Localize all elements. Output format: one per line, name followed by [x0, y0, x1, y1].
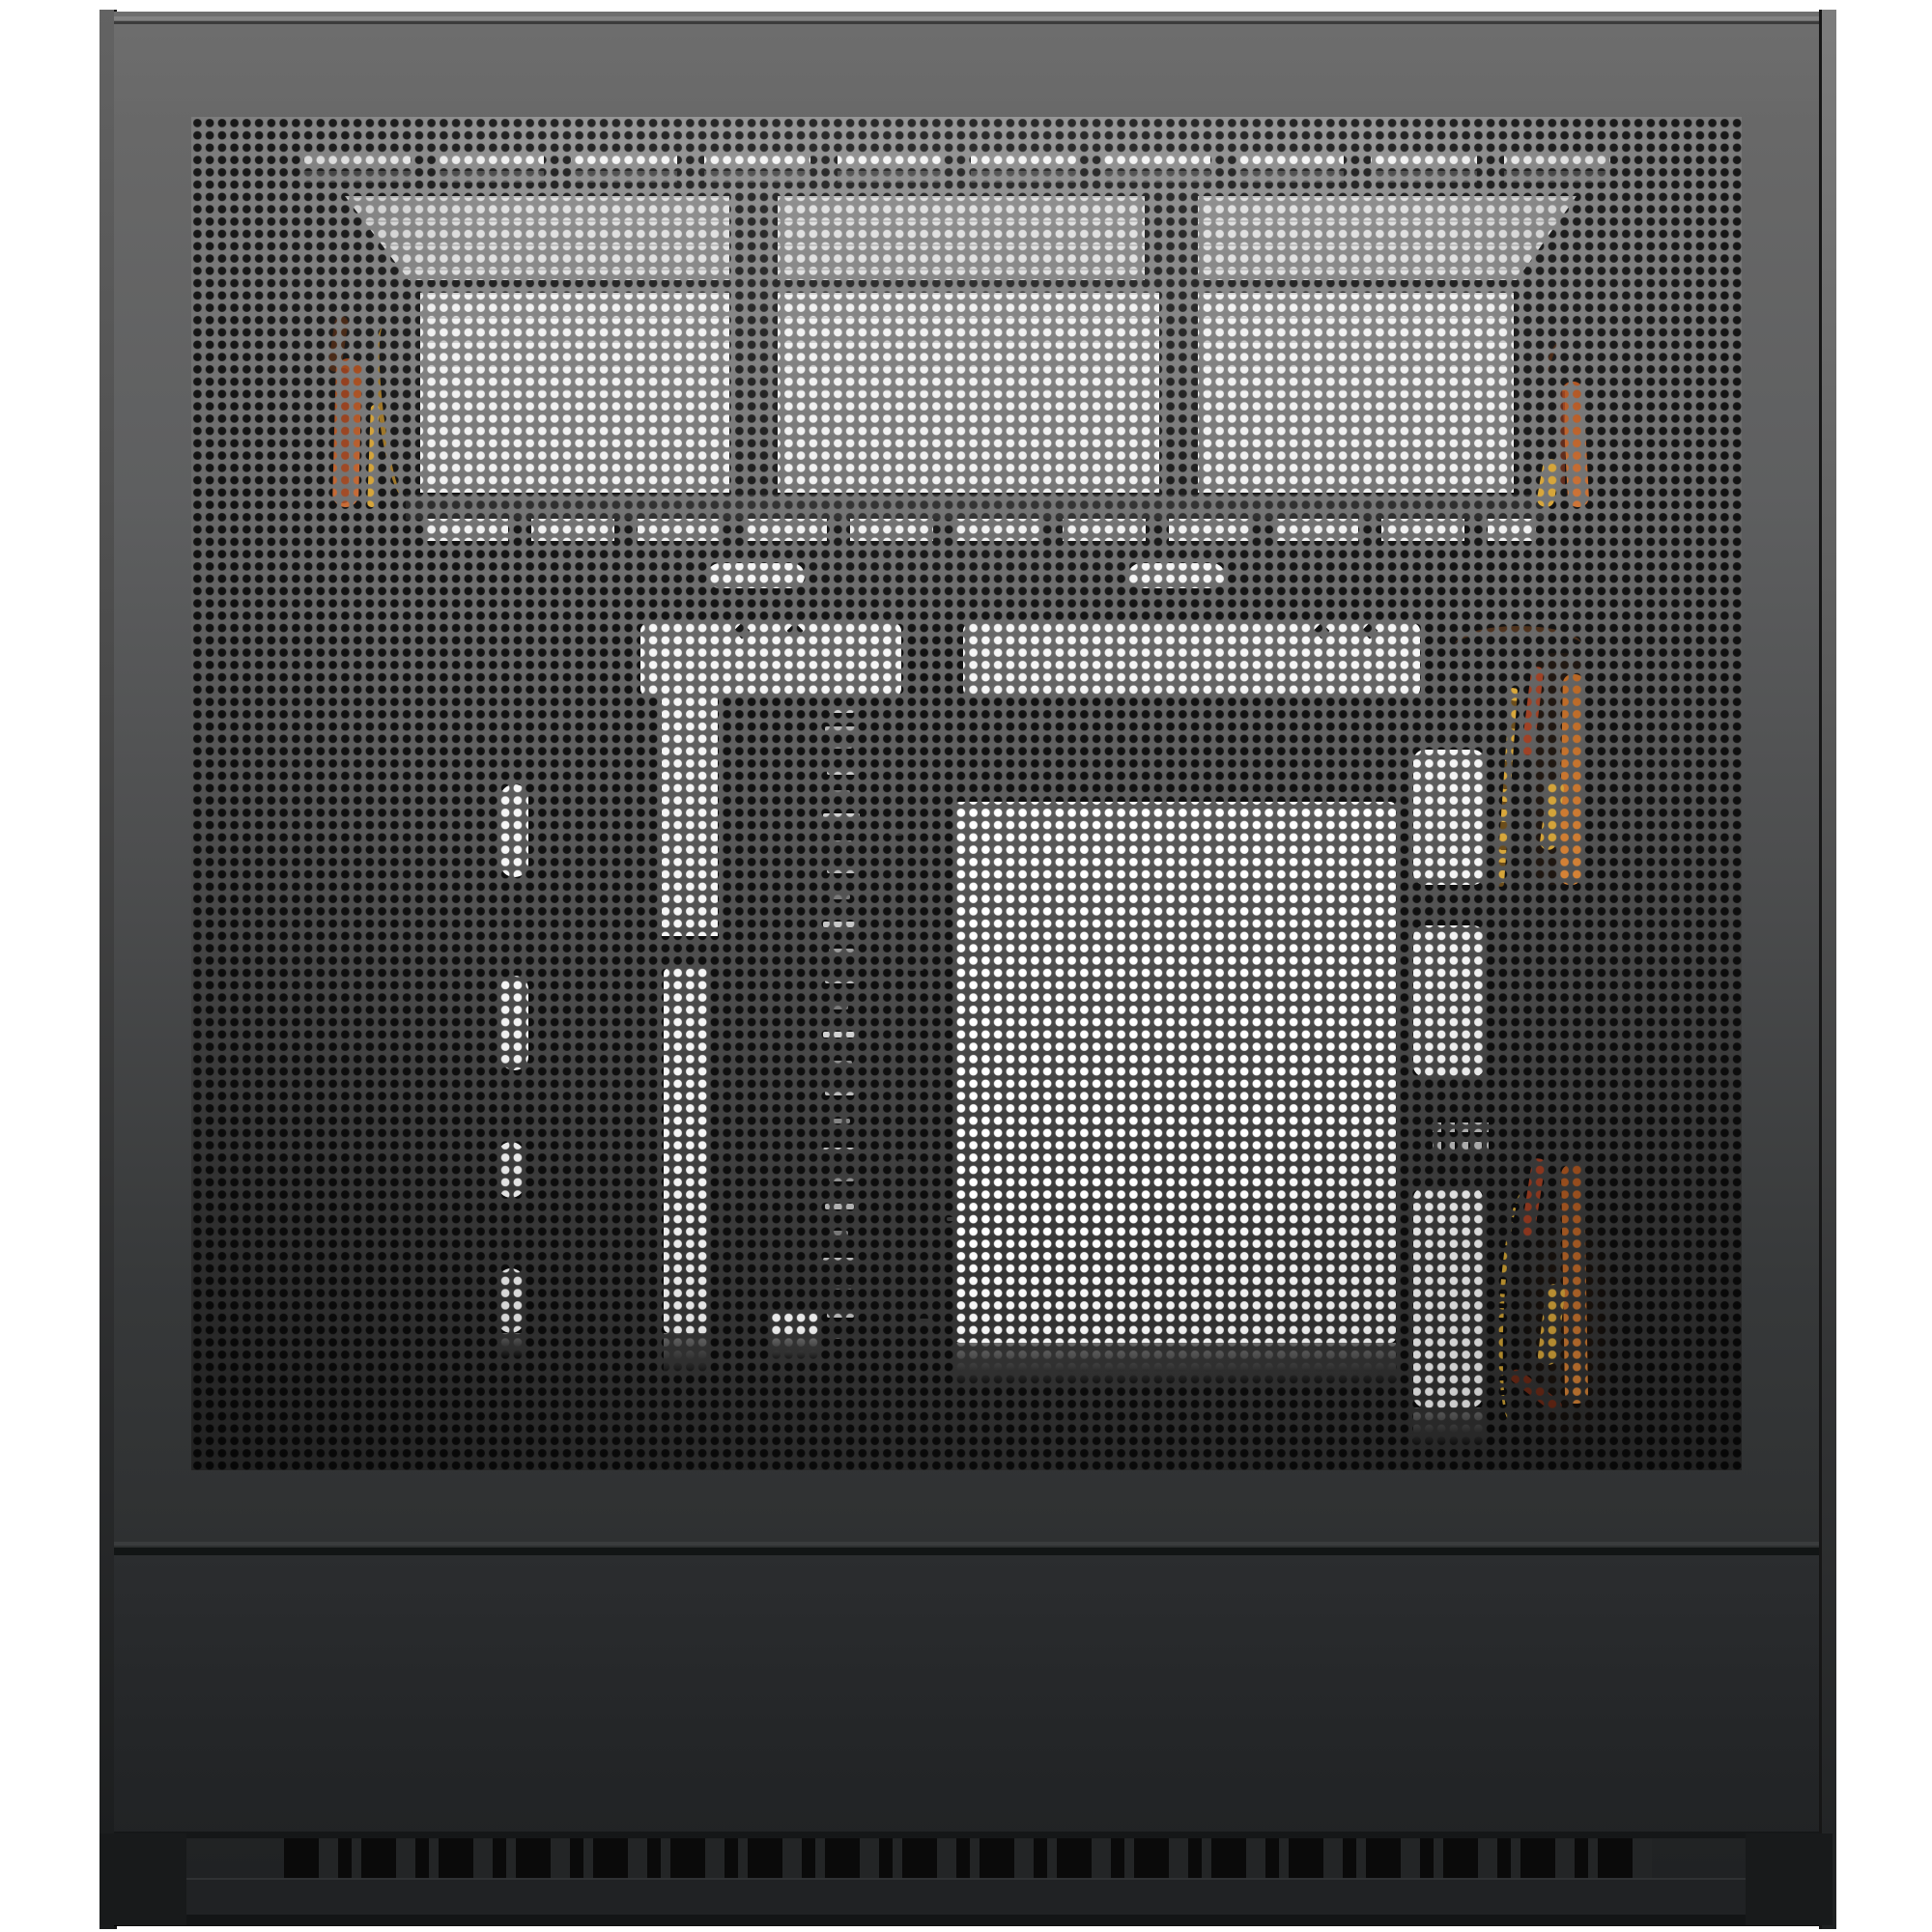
mesh-panel [191, 117, 1742, 1470]
bottom-lip [114, 1915, 1819, 1926]
base-lower-strip [135, 1878, 1797, 1917]
case-foot-right [1746, 1833, 1833, 1925]
top-edge-highlight [114, 16, 1819, 20]
panel-seam [114, 1548, 1819, 1555]
product-photo-pc-case [0, 0, 1932, 1932]
perforated-sheet [191, 117, 1742, 1470]
bottom-vent-grille [284, 1838, 1652, 1878]
vent-shadow-line [114, 1832, 1819, 1838]
top-edge-seam [114, 21, 1819, 24]
panel-seam-highlight [114, 1542, 1819, 1546]
case-foot-left [99, 1833, 186, 1925]
side-panel-edge-right [1819, 10, 1836, 1929]
